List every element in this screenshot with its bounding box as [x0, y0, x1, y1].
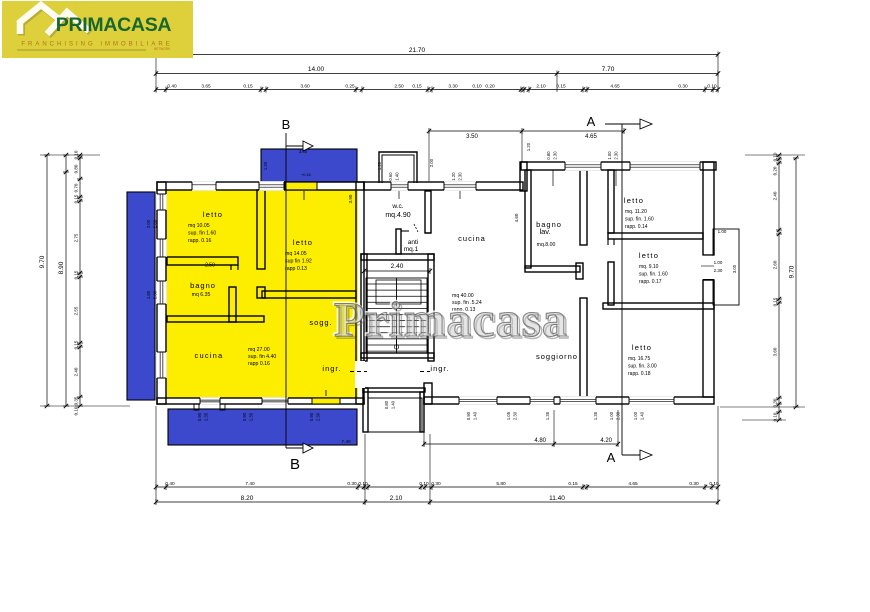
svg-text:rapp. 0.17: rapp. 0.17	[639, 279, 662, 285]
svg-text:0.40: 0.40	[167, 84, 177, 90]
svg-text:3.60: 3.60	[773, 347, 778, 356]
svg-text:sup. fin. 1.60: sup. fin. 1.60	[639, 272, 668, 278]
svg-text:7.40: 7.40	[341, 439, 351, 445]
svg-text:0.90: 0.90	[309, 412, 314, 421]
svg-text:ingr.: ingr.	[430, 364, 449, 373]
svg-text:4.20: 4.20	[600, 438, 612, 444]
svg-text:+0.16: +0.16	[301, 173, 311, 177]
svg-text:2.00: 2.00	[146, 219, 151, 228]
svg-text:0.20: 0.20	[773, 166, 778, 175]
svg-text:mq.8.00: mq.8.00	[537, 242, 556, 248]
svg-text:0.90: 0.90	[197, 412, 202, 421]
svg-text:0.15: 0.15	[773, 297, 778, 306]
svg-text:sup. fin. 1.60: sup. fin. 1.60	[625, 217, 654, 223]
svg-text:2.55: 2.55	[74, 306, 79, 315]
svg-text:0.80: 0.80	[384, 400, 389, 409]
svg-text:mq 27.00: mq 27.00	[248, 347, 270, 353]
svg-text:letto: letto	[203, 210, 223, 219]
svg-text:0.10: 0.10	[472, 84, 482, 90]
svg-text:1.40: 1.40	[473, 411, 478, 420]
svg-text:cucina: cucina	[458, 234, 486, 243]
svg-text:mq. 11.20: mq. 11.20	[625, 209, 647, 215]
svg-text:0.15: 0.15	[568, 481, 578, 487]
svg-text:NETWORK: NETWORK	[154, 47, 171, 51]
svg-text:0.15: 0.15	[412, 84, 422, 90]
svg-text:1.40: 1.40	[640, 411, 645, 420]
svg-text:2.00: 2.00	[429, 158, 434, 167]
svg-text:0.30: 0.30	[678, 84, 688, 90]
svg-text:5.80: 5.80	[496, 481, 506, 487]
svg-text:2.30: 2.30	[153, 290, 158, 299]
svg-text:2.30: 2.30	[614, 151, 619, 160]
svg-text:lav.: lav.	[539, 227, 550, 236]
svg-text:1.00: 1.00	[714, 260, 723, 265]
svg-text:sogg.: sogg.	[309, 318, 332, 327]
svg-text:1.20: 1.20	[263, 161, 268, 170]
svg-text:0.20: 0.20	[485, 84, 495, 90]
svg-text:0.70: 0.70	[74, 183, 79, 192]
svg-text:0.10: 0.10	[773, 152, 778, 161]
svg-text:mq 6.35: mq 6.35	[192, 292, 211, 298]
svg-text:0.10: 0.10	[419, 481, 429, 487]
svg-text:0.15: 0.15	[74, 270, 79, 279]
svg-text:0.10: 0.10	[74, 406, 79, 415]
svg-text:mq. 9.10: mq. 9.10	[639, 264, 659, 270]
svg-text:0.30: 0.30	[431, 481, 441, 487]
svg-text:8.90: 8.90	[58, 261, 65, 274]
svg-text:rapp. 0.14: rapp. 0.14	[625, 224, 648, 230]
svg-text:sup. fin 1.60: sup. fin 1.60	[188, 231, 216, 237]
svg-text:0.90: 0.90	[466, 411, 471, 420]
svg-text:PRIMACASA: PRIMACASA	[56, 14, 172, 36]
svg-text:0.35: 0.35	[74, 396, 79, 405]
svg-text:0.40: 0.40	[165, 481, 175, 487]
svg-text:0.30: 0.30	[347, 481, 357, 487]
svg-text:1.35: 1.35	[249, 412, 254, 421]
svg-text:0.30: 0.30	[773, 398, 778, 407]
svg-text:1.00: 1.00	[633, 411, 638, 420]
svg-text:2.50: 2.50	[394, 84, 404, 90]
svg-text:2.60: 2.60	[773, 260, 778, 269]
svg-text:0.80: 0.80	[74, 164, 79, 173]
svg-text:letto: letto	[632, 343, 652, 352]
svg-text:7.40: 7.40	[245, 481, 255, 487]
svg-text:1.00: 1.00	[607, 151, 612, 160]
svg-text:2.10: 2.10	[536, 84, 546, 90]
svg-text:0.10: 0.10	[709, 481, 719, 487]
svg-text:0.10: 0.10	[707, 84, 717, 90]
svg-text:3.90: 3.90	[348, 194, 353, 203]
svg-text:rapp. 0.16: rapp. 0.16	[188, 238, 211, 244]
svg-text:2.40: 2.40	[391, 263, 404, 270]
svg-text:0.10: 0.10	[358, 481, 368, 487]
svg-text:1.05: 1.05	[506, 411, 511, 420]
svg-text:3.60: 3.60	[299, 149, 308, 154]
svg-text:w.c.: w.c.	[391, 203, 403, 210]
svg-text:4.80: 4.80	[534, 438, 546, 444]
svg-text:1.40: 1.40	[395, 172, 400, 181]
svg-text:2.30: 2.30	[458, 172, 463, 181]
svg-text:3.50: 3.50	[466, 134, 478, 140]
svg-text:2.50: 2.50	[205, 263, 215, 269]
svg-text:14.00: 14.00	[308, 66, 325, 73]
svg-text:2.30: 2.30	[714, 268, 723, 273]
svg-text:1.35: 1.35	[593, 411, 598, 420]
svg-text:mq. 16.75: mq. 16.75	[628, 356, 650, 362]
svg-text:bagno: bagno	[190, 281, 216, 290]
svg-text:3.60: 3.60	[300, 84, 310, 90]
svg-text:ingr.: ingr.	[322, 364, 341, 373]
svg-text:cucina: cucina	[195, 351, 224, 360]
svg-text:2.75: 2.75	[74, 233, 79, 242]
svg-text:sup. fin 4.40: sup. fin 4.40	[248, 354, 276, 360]
svg-text:2.30: 2.30	[616, 411, 621, 420]
svg-text:3.30: 3.30	[448, 84, 458, 90]
svg-text:1.00: 1.00	[718, 229, 727, 234]
svg-text:4.60: 4.60	[514, 213, 519, 222]
svg-text:7.70: 7.70	[602, 66, 615, 73]
svg-text:0.15: 0.15	[243, 84, 253, 90]
svg-text:1.40: 1.40	[391, 400, 396, 409]
svg-text:mq 10.05: mq 10.05	[188, 223, 210, 229]
svg-text:1.00: 1.00	[609, 411, 614, 420]
svg-text:letto: letto	[293, 238, 313, 247]
svg-text:0.15: 0.15	[74, 340, 79, 349]
svg-text:8.20: 8.20	[241, 495, 254, 502]
svg-text:letto: letto	[639, 251, 659, 260]
svg-text:4.65: 4.65	[585, 134, 597, 140]
svg-text:2.30: 2.30	[316, 412, 321, 421]
svg-text:B: B	[282, 117, 291, 132]
svg-text:0.60: 0.60	[388, 172, 393, 181]
svg-text:Primacasa: Primacasa	[334, 291, 568, 347]
svg-text:A: A	[607, 450, 616, 465]
svg-text:1.35: 1.35	[545, 411, 550, 420]
svg-text:3.00: 3.00	[732, 264, 737, 273]
svg-text:2.10: 2.10	[390, 495, 403, 502]
svg-text:1.80: 1.80	[146, 290, 151, 299]
svg-text:9.70: 9.70	[789, 265, 796, 278]
svg-text:sup. fin. 3.00: sup. fin. 3.00	[628, 364, 657, 370]
svg-text:mq 14.05: mq 14.05	[285, 251, 307, 257]
svg-text:0.30: 0.30	[689, 481, 699, 487]
svg-text:1.35: 1.35	[204, 412, 209, 421]
svg-text:4.65: 4.65	[628, 481, 638, 487]
svg-text:2.40: 2.40	[773, 191, 778, 200]
svg-text:1.20: 1.20	[526, 142, 531, 151]
svg-text:1.20: 1.20	[451, 172, 456, 181]
svg-text:2.30: 2.30	[553, 151, 558, 160]
svg-text:soggiorno: soggiorno	[536, 352, 578, 361]
svg-text:0.80: 0.80	[546, 151, 551, 160]
svg-text:21.70: 21.70	[409, 47, 426, 54]
svg-text:rapp 0.16: rapp 0.16	[248, 361, 270, 367]
svg-text:letto: letto	[624, 196, 644, 205]
svg-text:2.40: 2.40	[74, 367, 79, 376]
svg-text:FRANCHISING IMMOBILIARE: FRANCHISING IMMOBILIARE	[21, 42, 172, 48]
svg-text:11.40: 11.40	[549, 495, 565, 502]
svg-text:0.25: 0.25	[345, 84, 355, 90]
svg-text:4.65: 4.65	[610, 84, 620, 90]
svg-text:rapp. 0.18: rapp. 0.18	[628, 371, 651, 377]
svg-text:sup fin 1.92: sup fin 1.92	[285, 259, 312, 265]
svg-text:mq.1: mq.1	[404, 246, 419, 253]
svg-text:anti: anti	[408, 239, 418, 246]
svg-text:A: A	[587, 114, 596, 129]
svg-text:3.65: 3.65	[201, 84, 211, 90]
svg-text:0.15: 0.15	[74, 194, 79, 203]
svg-text:B: B	[290, 456, 300, 473]
svg-text:1.20: 1.20	[377, 161, 382, 170]
svg-text:0.15: 0.15	[556, 84, 566, 90]
svg-text:2.30: 2.30	[153, 219, 158, 228]
svg-text:9.70: 9.70	[39, 255, 46, 268]
svg-text:2.30: 2.30	[513, 411, 518, 420]
svg-text:rapp 0.13: rapp 0.13	[285, 266, 307, 272]
svg-text:mq.4.90: mq.4.90	[385, 212, 410, 219]
svg-text:0.90: 0.90	[242, 412, 247, 421]
